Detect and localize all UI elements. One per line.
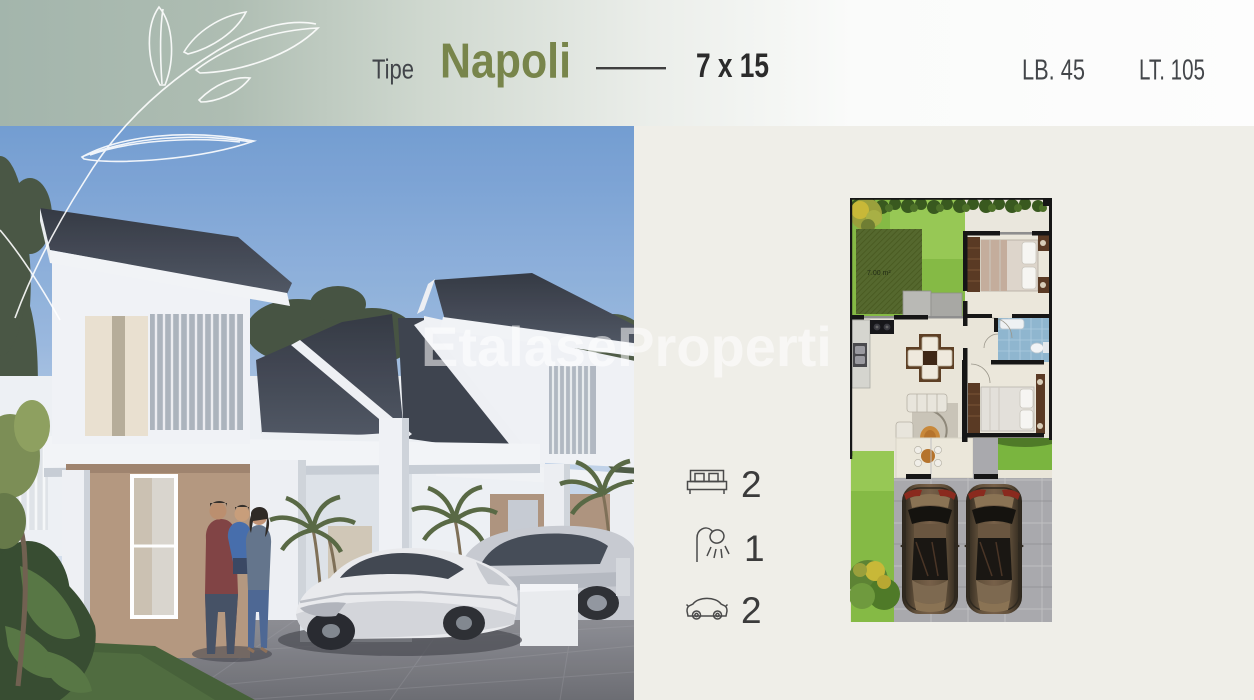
svg-text:Napoli: Napoli: [440, 34, 571, 88]
svg-text:7 x 15: 7 x 15: [696, 47, 769, 85]
svg-text:LB. 45: LB. 45: [1022, 55, 1085, 87]
svg-text:Tipe: Tipe: [372, 53, 414, 84]
svg-text:7.00 m²: 7.00 m²: [867, 270, 891, 277]
svg-text:LT. 105: LT. 105: [1139, 55, 1205, 87]
